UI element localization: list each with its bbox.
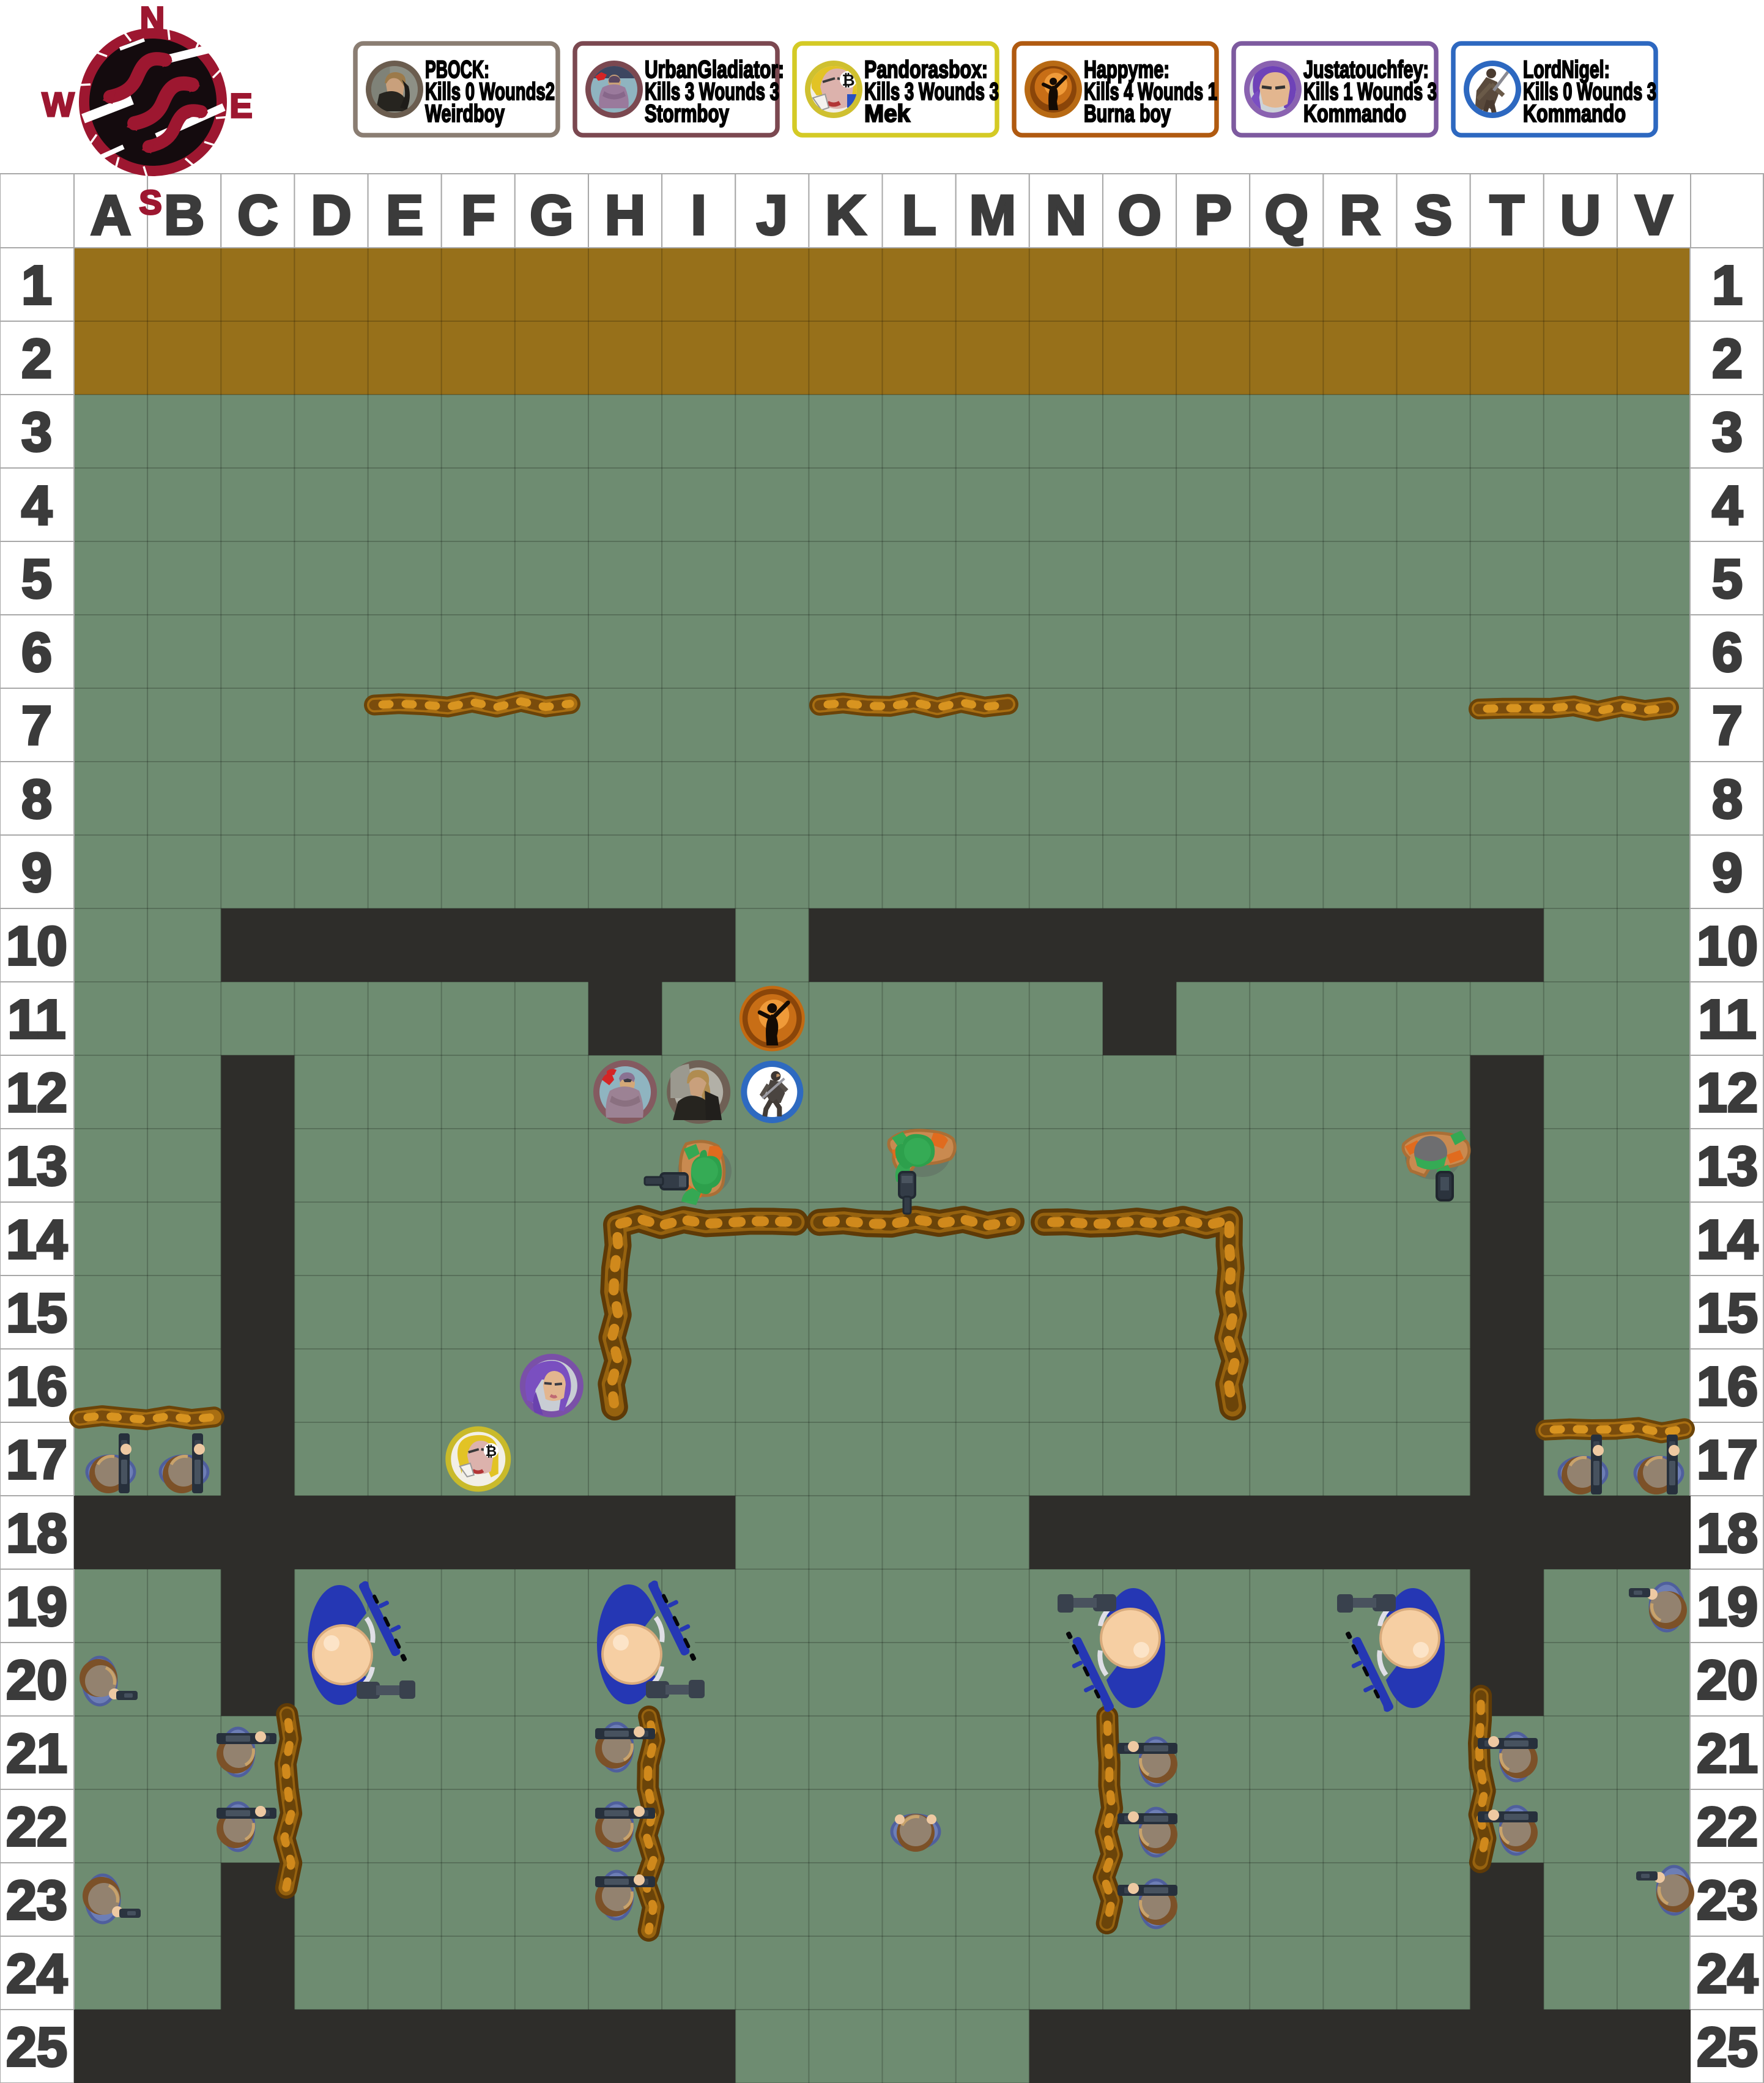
svg-text:11: 11 — [7, 989, 65, 1050]
svg-text:24: 24 — [6, 1944, 67, 2005]
svg-text:S: S — [1415, 184, 1452, 247]
svg-text:10: 10 — [1697, 916, 1758, 977]
svg-text:N: N — [1046, 184, 1086, 247]
svg-text:20: 20 — [6, 1650, 67, 1711]
svg-text:G: G — [530, 184, 574, 247]
svg-text:C: C — [237, 184, 278, 247]
svg-text:J: J — [757, 184, 788, 247]
svg-text:12: 12 — [6, 1063, 67, 1124]
svg-text:15: 15 — [6, 1283, 67, 1344]
svg-text:8: 8 — [21, 769, 52, 830]
svg-text:O: O — [1117, 184, 1162, 247]
svg-text:A: A — [91, 184, 131, 247]
svg-text:22: 22 — [6, 1797, 67, 1858]
svg-text:21: 21 — [1697, 1723, 1758, 1784]
svg-text:18: 18 — [6, 1503, 67, 1564]
svg-text:4: 4 — [1712, 475, 1743, 537]
svg-text:4: 4 — [21, 475, 52, 537]
svg-text:13: 13 — [1697, 1136, 1758, 1197]
svg-text:H: H — [605, 184, 645, 247]
svg-text:18: 18 — [1697, 1503, 1758, 1564]
svg-text:Kommando: Kommando — [1303, 100, 1406, 127]
svg-text:S: S — [139, 183, 161, 221]
svg-text:17: 17 — [6, 1430, 67, 1491]
svg-text:Stormboy: Stormboy — [645, 100, 730, 127]
svg-text:15: 15 — [1697, 1283, 1758, 1344]
svg-text:2: 2 — [1712, 329, 1743, 390]
svg-text:16: 16 — [1697, 1356, 1758, 1417]
svg-text:14: 14 — [1697, 1209, 1758, 1271]
svg-text:K: K — [825, 184, 865, 247]
svg-text:D: D — [311, 184, 351, 247]
svg-text:25: 25 — [6, 2017, 67, 2078]
svg-text:12: 12 — [1697, 1063, 1758, 1124]
svg-text:Mek: Mek — [864, 100, 911, 127]
svg-text:5: 5 — [21, 549, 52, 610]
svg-text:22: 22 — [1697, 1797, 1758, 1858]
svg-text:9: 9 — [21, 842, 52, 904]
svg-text:1: 1 — [21, 255, 52, 316]
svg-text:16: 16 — [6, 1356, 67, 1417]
svg-text:Weirdboy: Weirdboy — [425, 100, 505, 127]
svg-text:19: 19 — [6, 1576, 67, 1638]
svg-text:10: 10 — [6, 916, 67, 977]
svg-text:13: 13 — [6, 1136, 67, 1197]
svg-text:L: L — [902, 184, 936, 247]
svg-text:25: 25 — [1697, 2017, 1758, 2078]
svg-text:23: 23 — [1697, 1870, 1758, 1931]
svg-text:8: 8 — [1712, 769, 1743, 830]
svg-text:21: 21 — [6, 1723, 67, 1784]
svg-text:Kommando: Kommando — [1523, 100, 1626, 127]
svg-text:19: 19 — [1697, 1576, 1758, 1638]
svg-text:R: R — [1340, 184, 1380, 247]
svg-text:T: T — [1490, 184, 1524, 247]
svg-text:9: 9 — [1712, 842, 1743, 904]
svg-text:20: 20 — [1697, 1650, 1758, 1711]
svg-text:2: 2 — [21, 329, 52, 390]
svg-text:3: 3 — [1712, 402, 1743, 463]
svg-text:U: U — [1560, 184, 1601, 247]
svg-text:14: 14 — [6, 1209, 67, 1271]
svg-text:B: B — [164, 184, 204, 247]
svg-text:Q: Q — [1265, 184, 1309, 247]
svg-text:3: 3 — [21, 402, 52, 463]
svg-text:5: 5 — [1712, 549, 1743, 610]
svg-text:1: 1 — [1712, 255, 1743, 316]
svg-text:24: 24 — [1697, 1944, 1758, 2005]
svg-text:P: P — [1195, 184, 1232, 247]
svg-text:V: V — [1635, 184, 1672, 247]
svg-text:₿: ₿ — [485, 1443, 497, 1459]
svg-text:11: 11 — [1698, 989, 1756, 1050]
svg-text:E: E — [229, 86, 252, 125]
svg-text:F: F — [461, 184, 495, 247]
svg-text:Burna boy: Burna boy — [1084, 100, 1171, 127]
svg-text:I: I — [691, 184, 706, 247]
svg-text:6: 6 — [1712, 622, 1743, 683]
svg-text:6: 6 — [21, 622, 52, 683]
svg-text:23: 23 — [6, 1870, 67, 1931]
svg-text:7: 7 — [21, 696, 52, 757]
svg-text:N: N — [140, 0, 165, 38]
svg-text:17: 17 — [1697, 1430, 1758, 1491]
svg-text:7: 7 — [1712, 696, 1743, 757]
svg-text:E: E — [386, 184, 423, 247]
svg-text:W: W — [42, 85, 75, 124]
svg-text:M: M — [969, 184, 1016, 247]
